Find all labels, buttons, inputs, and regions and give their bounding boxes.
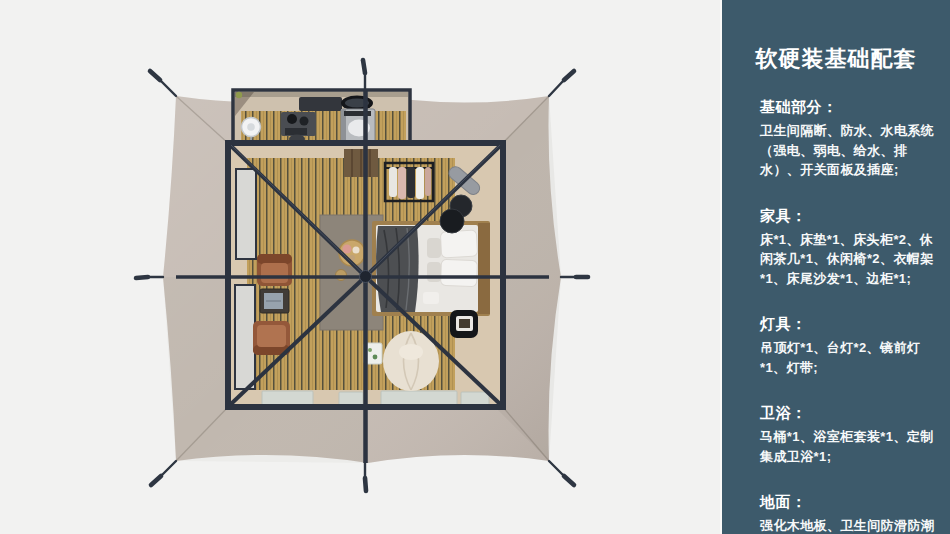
- headboard: [478, 223, 490, 314]
- center-pole-hub: [360, 271, 372, 283]
- spec-sidebar: 软硬装基础配套 基础部分： 卫生间隔断、防水、水电系统（强电、弱电、给水、排水）…: [720, 0, 950, 534]
- wash-basin: [341, 109, 375, 143]
- spec-sections: 基础部分： 卫生间隔断、防水、水电系统（强电、弱电、给水、排水）、开关面板及插座…: [722, 98, 950, 534]
- armchair-lower: [253, 321, 290, 355]
- floorplan-svg: [0, 0, 718, 534]
- bathroom-annex: [233, 90, 410, 147]
- section-body: 马桶*1、浴室柜套装*1、定制集成卫浴*1;: [760, 427, 936, 466]
- section-heading: 灯具：: [760, 315, 936, 334]
- section-heading: 基础部分：: [760, 98, 936, 117]
- slide: 软硬装基础配套 基础部分： 卫生间隔断、防水、水电系统（强电、弱电、给水、排水）…: [0, 0, 950, 534]
- vanity-mirror: [341, 96, 373, 111]
- coffee-table: [260, 289, 289, 313]
- entry-threshold-mat: [344, 149, 378, 177]
- section-heading: 地面：: [760, 493, 936, 512]
- section-furniture: 家具： 床*1、床垫*1、床头柜*2、休闲茶几*1、休闲椅*2、衣帽架*1、床尾…: [760, 207, 936, 289]
- counter-top: [299, 97, 342, 111]
- floorplan-render: [0, 0, 718, 534]
- section-bathroom: 卫浴： 马桶*1、浴室柜套装*1、定制集成卫浴*1;: [760, 404, 936, 466]
- section-flooring: 地面： 强化木地板、卫生间防滑防潮石塑板;: [760, 493, 936, 534]
- small-dish: [336, 270, 347, 281]
- armchair-upper: [257, 254, 292, 286]
- section-body: 强化木地板、卫生间防滑防潮石塑板;: [760, 516, 936, 534]
- section-lighting: 灯具： 吊顶灯*1、台灯*2、镜前灯*1、灯带;: [760, 315, 936, 377]
- section-body: 卫生间隔断、防水、水电系统（强电、弱电、给水、排水）、开关面板及插座;: [760, 121, 936, 180]
- plant-icon: [236, 92, 242, 98]
- section-basics: 基础部分： 卫生间隔断、防水、水电系统（强电、弱电、给水、排水）、开关面板及插座…: [760, 98, 936, 180]
- section-body: 床*1、床垫*1、床头柜*2、休闲茶几*1、休闲椅*2、衣帽架*1、床尾沙发*1…: [760, 230, 936, 289]
- side-table-with-tray: [450, 310, 478, 338]
- page-title: 软硬装基础配套: [730, 44, 942, 74]
- section-body: 吊顶灯*1、台灯*2、镜前灯*1、灯带;: [760, 338, 936, 377]
- section-heading: 家具：: [760, 207, 936, 226]
- roof-frame: [176, 90, 549, 463]
- section-heading: 卫浴：: [760, 404, 936, 423]
